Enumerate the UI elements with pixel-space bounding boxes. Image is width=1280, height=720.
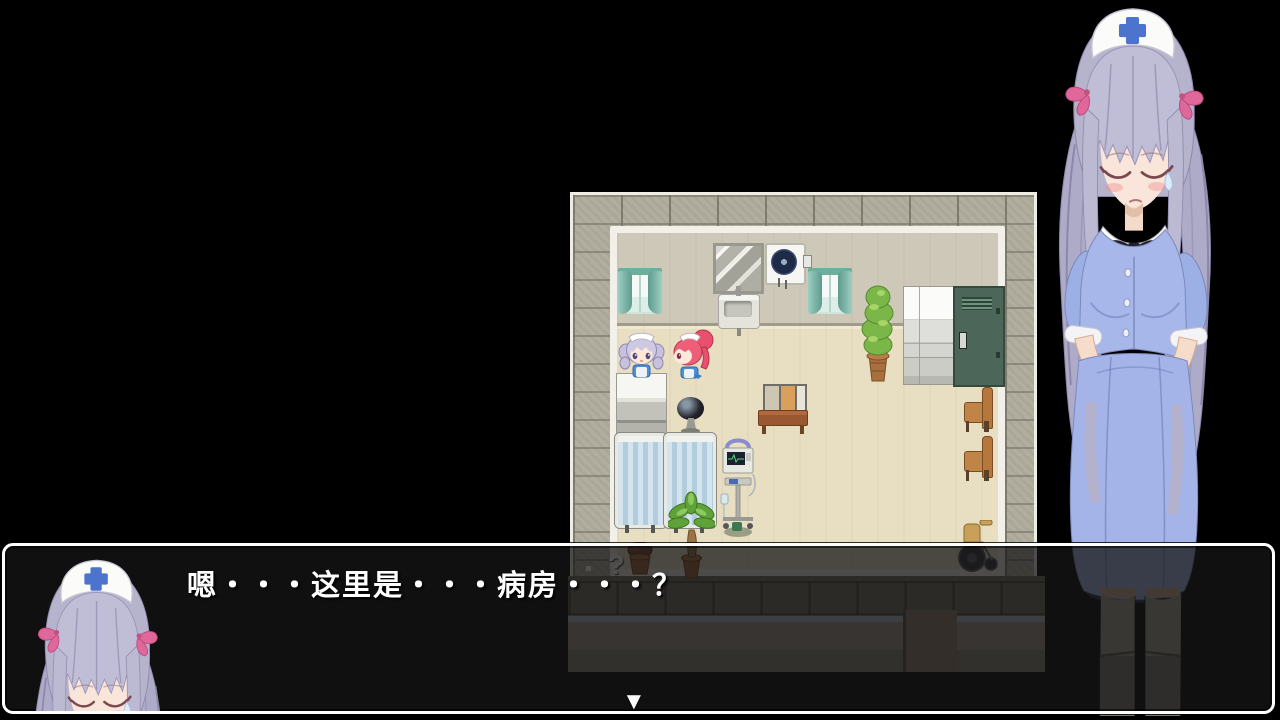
sink-faucet bbox=[736, 286, 741, 296]
fan-cords bbox=[778, 278, 780, 287]
game-screen: ? 嗯・・・这里是・・・病房・・・？ ▼ bbox=[0, 0, 1280, 720]
sink-basin bbox=[724, 301, 752, 317]
ventilation-fan bbox=[765, 243, 806, 285]
round-stool bbox=[675, 397, 706, 434]
nurse-dialogue-portrait bbox=[27, 556, 173, 714]
curtained-window-left bbox=[618, 268, 662, 314]
sink-pipe bbox=[737, 328, 741, 336]
hospital-bed bbox=[616, 373, 667, 435]
green-locker bbox=[953, 286, 1005, 387]
locker-hinges bbox=[996, 308, 1000, 314]
maid-sprite-pink-hair[interactable] bbox=[668, 329, 714, 381]
locker-vents bbox=[962, 297, 992, 310]
chair-legs bbox=[966, 421, 989, 432]
dialogue-text: 嗯・・・这里是・・・病房・・・？ bbox=[187, 562, 683, 604]
wooden-chair-upper bbox=[964, 387, 994, 433]
screen-feet bbox=[625, 525, 629, 533]
locker-handle bbox=[959, 332, 967, 349]
medical-monitor-stand bbox=[719, 434, 757, 541]
curtained-window-right bbox=[808, 268, 852, 314]
desk-legs bbox=[762, 425, 804, 434]
curtain-right bbox=[648, 271, 662, 314]
fan-plug bbox=[803, 255, 812, 268]
supply-desk bbox=[758, 384, 808, 434]
chair-legs bbox=[966, 470, 989, 481]
curtain-left bbox=[618, 271, 632, 314]
curtain-left bbox=[808, 271, 822, 314]
refrigerator bbox=[903, 286, 955, 385]
curtain-right bbox=[838, 271, 852, 314]
wooden-chair-lower bbox=[964, 436, 994, 482]
maid-sprite-silver-hair[interactable] bbox=[618, 330, 665, 379]
wall-sink bbox=[718, 294, 760, 329]
tall-potted-plant bbox=[857, 283, 899, 384]
desk-top bbox=[758, 410, 808, 426]
stool-seat bbox=[677, 397, 704, 420]
privacy-screen-left bbox=[615, 433, 667, 528]
fan-blade-icon bbox=[771, 249, 797, 275]
advance-arrow-icon[interactable]: ▼ bbox=[622, 690, 646, 714]
